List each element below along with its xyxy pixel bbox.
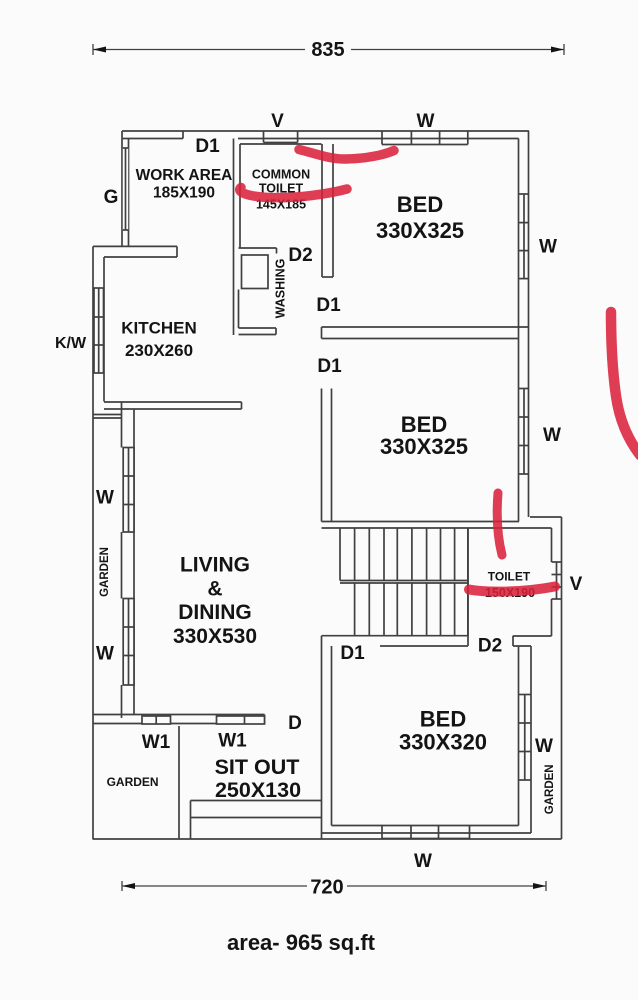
svg-text:KITCHEN: KITCHEN	[121, 319, 197, 338]
svg-text:GARDEN: GARDEN	[99, 547, 111, 597]
svg-text:W: W	[414, 851, 432, 872]
svg-text:GARDEN: GARDEN	[544, 764, 556, 814]
svg-text:D1: D1	[195, 136, 220, 157]
svg-text:330X325: 330X325	[380, 434, 468, 459]
svg-text:LIVING: LIVING	[180, 554, 250, 577]
svg-text:DINING: DINING	[178, 601, 252, 624]
svg-text:WASHING: WASHING	[274, 259, 288, 319]
svg-text:D: D	[288, 713, 302, 734]
svg-text:W: W	[96, 644, 114, 665]
svg-text:W: W	[96, 488, 114, 509]
svg-text:D2: D2	[478, 636, 502, 657]
svg-text:W: W	[539, 237, 557, 258]
svg-text:W: W	[417, 111, 435, 132]
svg-text:D1: D1	[316, 295, 341, 316]
svg-text:BED: BED	[420, 707, 466, 732]
svg-text:WORK AREA: WORK AREA	[136, 167, 233, 184]
svg-text:TOILET: TOILET	[488, 570, 531, 584]
svg-text:W1: W1	[142, 732, 171, 753]
svg-text:330X325: 330X325	[376, 218, 464, 243]
svg-text:835: 835	[311, 39, 344, 61]
svg-text:D2: D2	[288, 245, 312, 266]
svg-text:D1: D1	[317, 356, 342, 377]
svg-text:COMMON: COMMON	[252, 168, 310, 182]
svg-text:BED: BED	[397, 192, 443, 217]
svg-text:G: G	[104, 187, 119, 208]
svg-text:W: W	[535, 736, 553, 757]
svg-text:250X130: 250X130	[215, 778, 301, 802]
svg-text:SIT OUT: SIT OUT	[215, 755, 300, 779]
svg-text:&: &	[207, 578, 222, 601]
svg-text:GARDEN: GARDEN	[107, 775, 159, 789]
svg-text:V: V	[271, 111, 284, 132]
svg-text:330X530: 330X530	[173, 625, 257, 648]
svg-text:D1: D1	[340, 643, 365, 664]
svg-text:W1: W1	[218, 731, 247, 752]
svg-text:185X190: 185X190	[153, 185, 215, 202]
svg-text:230X260: 230X260	[125, 341, 193, 360]
svg-text:V: V	[570, 574, 583, 595]
svg-text:330X320: 330X320	[399, 730, 487, 755]
svg-text:W: W	[543, 425, 561, 446]
svg-text:720: 720	[310, 877, 343, 899]
svg-text:area- 965 sq.ft: area- 965 sq.ft	[227, 930, 376, 955]
svg-text:K/W: K/W	[55, 335, 87, 352]
